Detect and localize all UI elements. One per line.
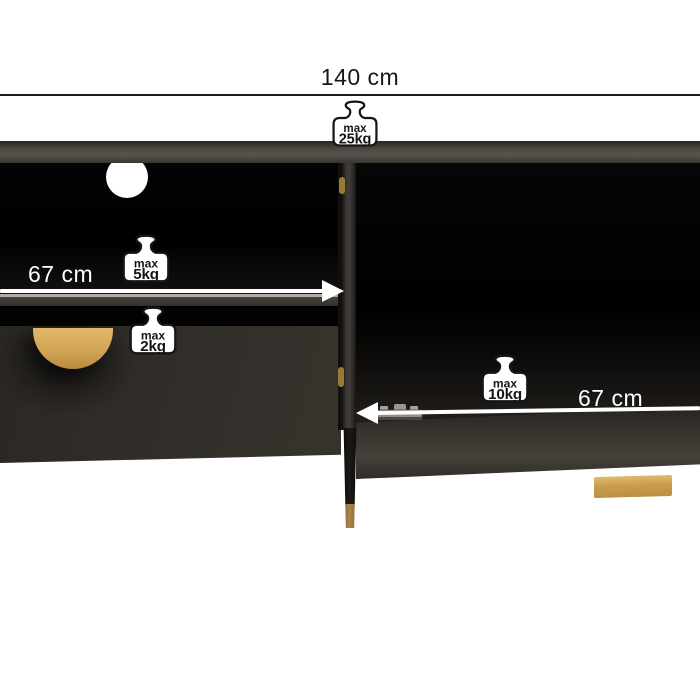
weight-value-label: 2kg: [140, 338, 166, 355]
weight-value-label: 5kg: [133, 266, 159, 283]
center-leg: [342, 428, 358, 528]
cable-hole: [106, 163, 148, 198]
weight-limit-badge-top: max 25kg: [329, 100, 381, 148]
dimension-line-top: [0, 94, 700, 96]
leg-gold-tip: [342, 504, 358, 528]
hinge-pin-icon: [339, 177, 345, 194]
hinge-pin-icon: [338, 367, 344, 387]
arrow-left-icon: [356, 402, 378, 424]
weight-value-label: 10kg: [488, 386, 522, 403]
weight-value-label: 25kg: [339, 131, 372, 147]
tv-cabinet-dimension-diagram: 140 cm 67 cm 67 cm max 25kg: [0, 0, 700, 700]
weight-limit-badge-shelf: max 5kg: [119, 234, 173, 284]
weight-limit-badge-cabinet: max 10kg: [478, 354, 532, 404]
leg-shaft: [342, 428, 358, 506]
shelf-front-edge: [0, 297, 338, 306]
dimension-label-left-width: 67 cm: [28, 261, 93, 288]
dimension-arrow-left-shaft: [0, 289, 326, 293]
arrow-right-icon: [322, 280, 344, 302]
weight-limit-badge-drawer: max 2kg: [126, 306, 180, 356]
dimension-label-top-width: 140 cm: [280, 64, 440, 91]
dimension-label-right-width: 67 cm: [578, 385, 643, 412]
right-gold-foot: [594, 475, 672, 498]
